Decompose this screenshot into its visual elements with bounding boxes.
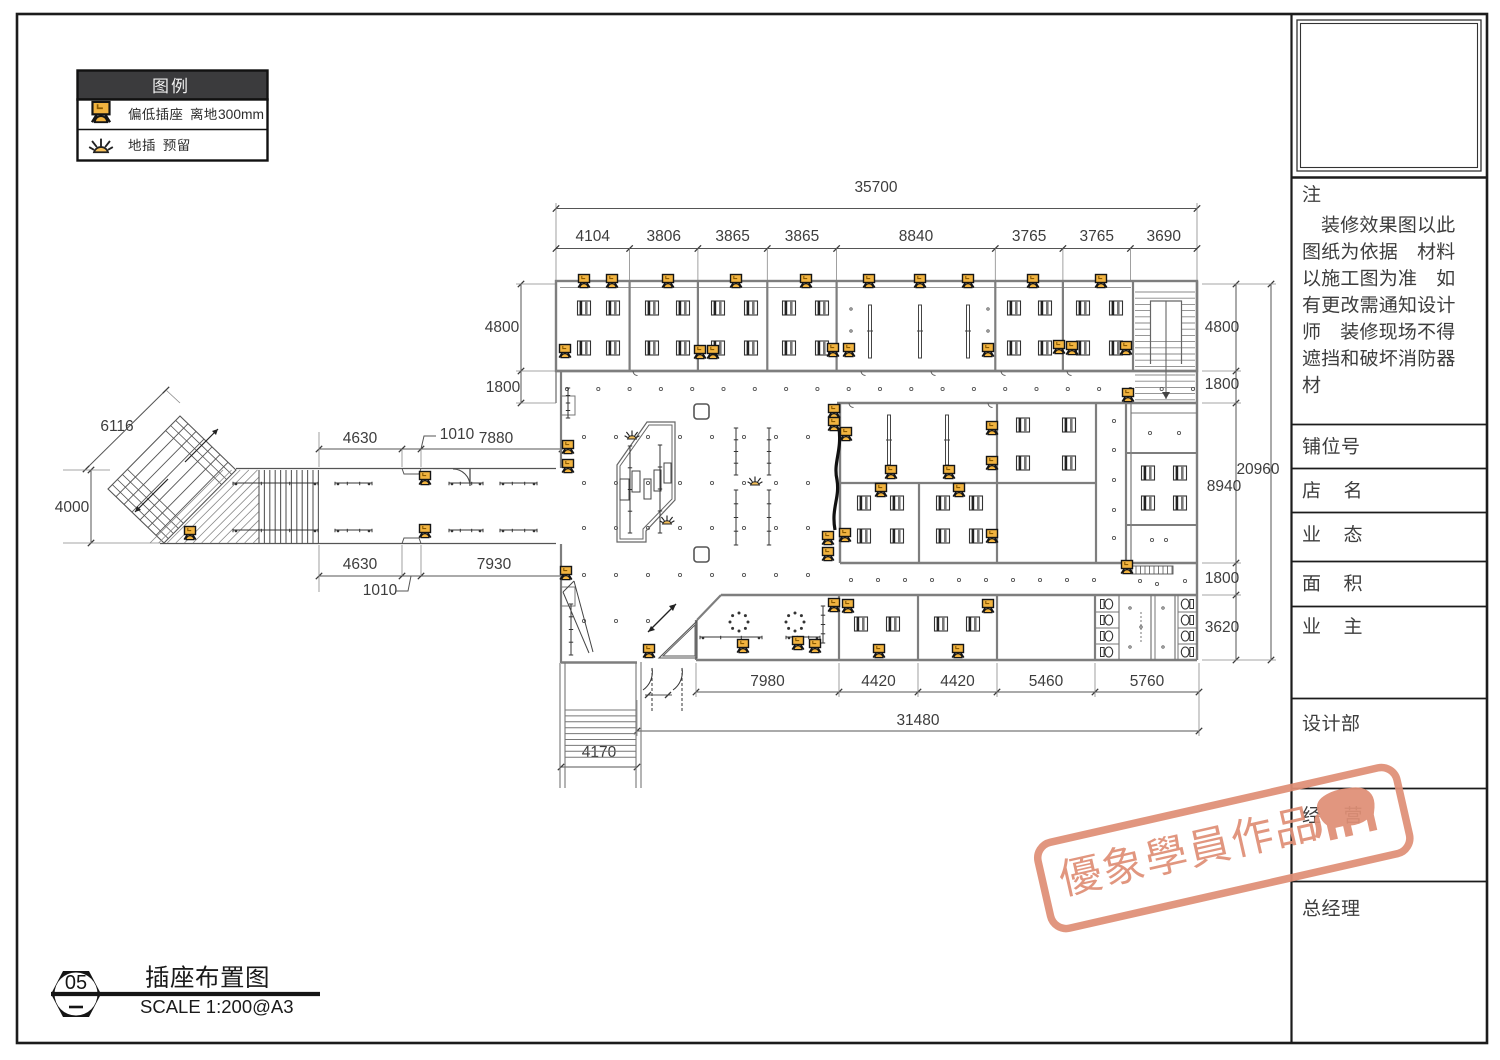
svg-text:8840: 8840 (899, 228, 934, 245)
svg-text:4800: 4800 (1205, 319, 1240, 336)
svg-text:35700: 35700 (854, 179, 897, 196)
svg-text:3806: 3806 (647, 228, 681, 245)
svg-text:7880: 7880 (479, 430, 514, 447)
svg-text:4630: 4630 (343, 556, 378, 573)
svg-text:3865: 3865 (715, 228, 749, 245)
svg-text:4104: 4104 (576, 228, 611, 245)
svg-text:4630: 4630 (343, 430, 378, 447)
svg-text:1800: 1800 (1205, 570, 1240, 587)
svg-text:8940: 8940 (1207, 478, 1242, 495)
svg-text:1010: 1010 (363, 582, 398, 599)
svg-text:1800: 1800 (1205, 376, 1240, 393)
svg-text:SCALE 1:200@A3: SCALE 1:200@A3 (140, 996, 294, 1017)
svg-text:3690: 3690 (1146, 228, 1181, 245)
svg-text:4800: 4800 (485, 319, 520, 336)
svg-text:3765: 3765 (1012, 228, 1046, 245)
svg-text:4170: 4170 (582, 744, 617, 761)
svg-text:05: 05 (65, 972, 87, 994)
svg-text:3865: 3865 (785, 228, 819, 245)
svg-text:7980: 7980 (750, 673, 785, 690)
svg-text:4000: 4000 (55, 499, 90, 516)
svg-text:20960: 20960 (1236, 461, 1279, 478)
svg-text:3765: 3765 (1079, 228, 1113, 245)
svg-text:4420: 4420 (861, 673, 896, 690)
svg-text:1800: 1800 (486, 379, 521, 396)
svg-text:300mm: 300mm (218, 107, 264, 122)
svg-text:5760: 5760 (1130, 673, 1165, 690)
svg-text:1010: 1010 (440, 426, 475, 443)
svg-text:3620: 3620 (1205, 619, 1240, 636)
svg-text:7930: 7930 (477, 556, 512, 573)
svg-text:4420: 4420 (940, 673, 975, 690)
svg-text:6116: 6116 (100, 418, 133, 435)
svg-text:31480: 31480 (896, 712, 939, 729)
svg-text:5460: 5460 (1029, 673, 1064, 690)
